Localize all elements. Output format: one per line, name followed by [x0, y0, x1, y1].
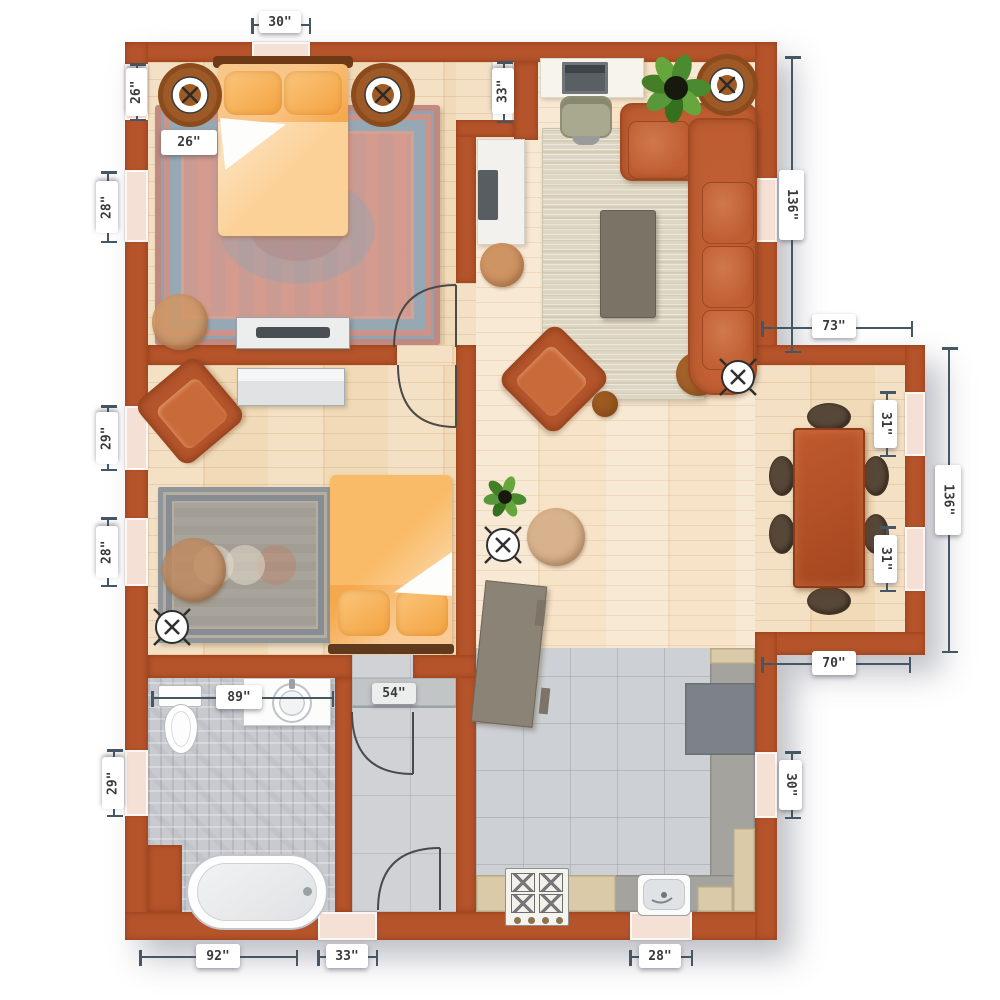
dresser-bedroom-2[interactable] — [237, 368, 345, 406]
window-dining-31a[interactable] — [905, 392, 925, 456]
kitchen-counter-right-tan-top — [710, 648, 755, 664]
bathtub-basin — [197, 863, 317, 921]
door-opening-bedroom-1 — [456, 283, 476, 345]
dimension-label-dining-136[interactable]: 136" — [935, 465, 961, 535]
dining-chair-left-2[interactable] — [769, 514, 795, 554]
dimension-label-73[interactable]: 73" — [812, 314, 856, 338]
wall-closet-left — [335, 678, 352, 912]
sofa-cushion — [702, 246, 754, 308]
bed-2-pillow-left — [338, 590, 390, 636]
floor-plan-canvas: 30" 26" 26" 28" 29" 28" 29" 33" 136" 73"… — [0, 0, 1000, 1000]
bathroom-sink[interactable] — [272, 683, 312, 723]
dimension-label-bottom-92[interactable]: 92" — [196, 944, 240, 968]
window-left-28b[interactable] — [125, 518, 148, 586]
stove-burner-2 — [539, 873, 563, 892]
dimension-label-left-28b[interactable]: 28" — [96, 526, 118, 578]
dimension-label-closet-54[interactable]: 54" — [372, 683, 416, 704]
dimension-label-dining-31b[interactable]: 31" — [874, 535, 897, 583]
dimension-label-left-29b[interactable]: 29" — [102, 757, 124, 809]
dimension-label-entry-33[interactable]: 33" — [492, 68, 514, 114]
stove-burner-3 — [511, 894, 535, 913]
door-opening-closet — [352, 655, 413, 678]
dimension-label-70[interactable]: 70" — [812, 651, 856, 675]
floor-closet — [352, 678, 456, 912]
rug-round-hallway[interactable] — [527, 508, 585, 566]
kitchen-counter-tan-right-2 — [697, 886, 733, 912]
dimension-label-dining-31a[interactable]: 31" — [874, 400, 897, 448]
dining-chair-right-1[interactable] — [863, 456, 889, 496]
dimension-label-bath-89[interactable]: 89" — [216, 685, 262, 709]
tv-hallway[interactable] — [478, 170, 498, 220]
dimension-label-bed-26[interactable]: 26" — [161, 130, 217, 155]
kitchen-sink-drain — [661, 892, 667, 898]
bathroom-sink-faucet — [289, 679, 295, 689]
bed-2-pillow-right — [396, 590, 448, 636]
wall-bathroom-top-left — [148, 655, 352, 678]
window-left-28a[interactable] — [125, 170, 148, 242]
dining-chair-top[interactable] — [807, 403, 851, 431]
window-kitchen-30[interactable] — [755, 752, 777, 818]
dimension-label-bottom-28[interactable]: 28" — [639, 944, 681, 968]
pouf-bedroom-1[interactable] — [152, 294, 208, 350]
bed-1-pillow-right — [284, 71, 342, 115]
dining-table[interactable] — [793, 428, 865, 588]
dimension-label-left-26[interactable]: 26" — [126, 68, 147, 116]
wall-dining-top — [755, 345, 925, 365]
coffee-table[interactable] — [600, 210, 656, 318]
pouf-small-hallway[interactable] — [592, 391, 618, 417]
wall-entry-vertical — [514, 62, 538, 140]
dimension-label-living-136[interactable]: 136" — [779, 170, 804, 240]
bathtub-drain — [303, 887, 312, 896]
stove[interactable] — [505, 868, 569, 926]
stove-burner-1 — [511, 873, 535, 892]
stove-burner-4 — [539, 894, 563, 913]
window-left-29b[interactable] — [125, 750, 148, 816]
entry-door-opening-33[interactable] — [318, 912, 377, 940]
dining-chair-bottom[interactable] — [807, 587, 851, 615]
door-opening-bedroom-2 — [397, 345, 456, 365]
window-living-right[interactable] — [755, 178, 777, 242]
dimension-label-left-28a[interactable]: 28" — [96, 181, 118, 233]
dining-chair-left-1[interactable] — [769, 456, 795, 496]
armchair-hallway-seat — [514, 344, 590, 420]
sofa-cushion — [702, 182, 754, 244]
pouf-hallway[interactable] — [480, 243, 524, 287]
sofa-cushion — [628, 121, 690, 179]
dimension-label-bottom-33[interactable]: 33" — [326, 944, 368, 968]
dimension-label-left-29a[interactable]: 29" — [96, 412, 118, 464]
wall-mid-vertical-upper — [456, 128, 476, 283]
printer[interactable] — [562, 62, 608, 94]
bed-2-headboard[interactable] — [328, 644, 454, 654]
window-dining-31b[interactable] — [905, 527, 925, 591]
pouf-bedroom-2[interactable] — [162, 538, 226, 602]
dimension-label-top-30[interactable]: 30" — [259, 11, 301, 33]
office-chair[interactable] — [560, 96, 612, 138]
sofa-cushion — [702, 310, 754, 370]
bed-1-pillow-left — [224, 71, 282, 115]
kitchen-counter-tan-right-1 — [733, 828, 755, 912]
sofa-section-right[interactable] — [688, 118, 757, 395]
wall-bathroom-block — [148, 845, 182, 912]
dimension-label-kitchen-30[interactable]: 30" — [779, 760, 802, 810]
wall-mid-vertical-lower — [456, 345, 476, 675]
stove-knobs — [514, 917, 521, 924]
tv-bedroom-1[interactable] — [256, 327, 330, 338]
kitchen-appliance-square[interactable] — [685, 683, 755, 755]
armchair-bedroom-2-seat — [155, 376, 230, 451]
window-bottom-28[interactable] — [630, 912, 692, 940]
wall-bathroom-top-right — [413, 655, 476, 678]
floor-bedroom-1-ext — [456, 62, 491, 122]
